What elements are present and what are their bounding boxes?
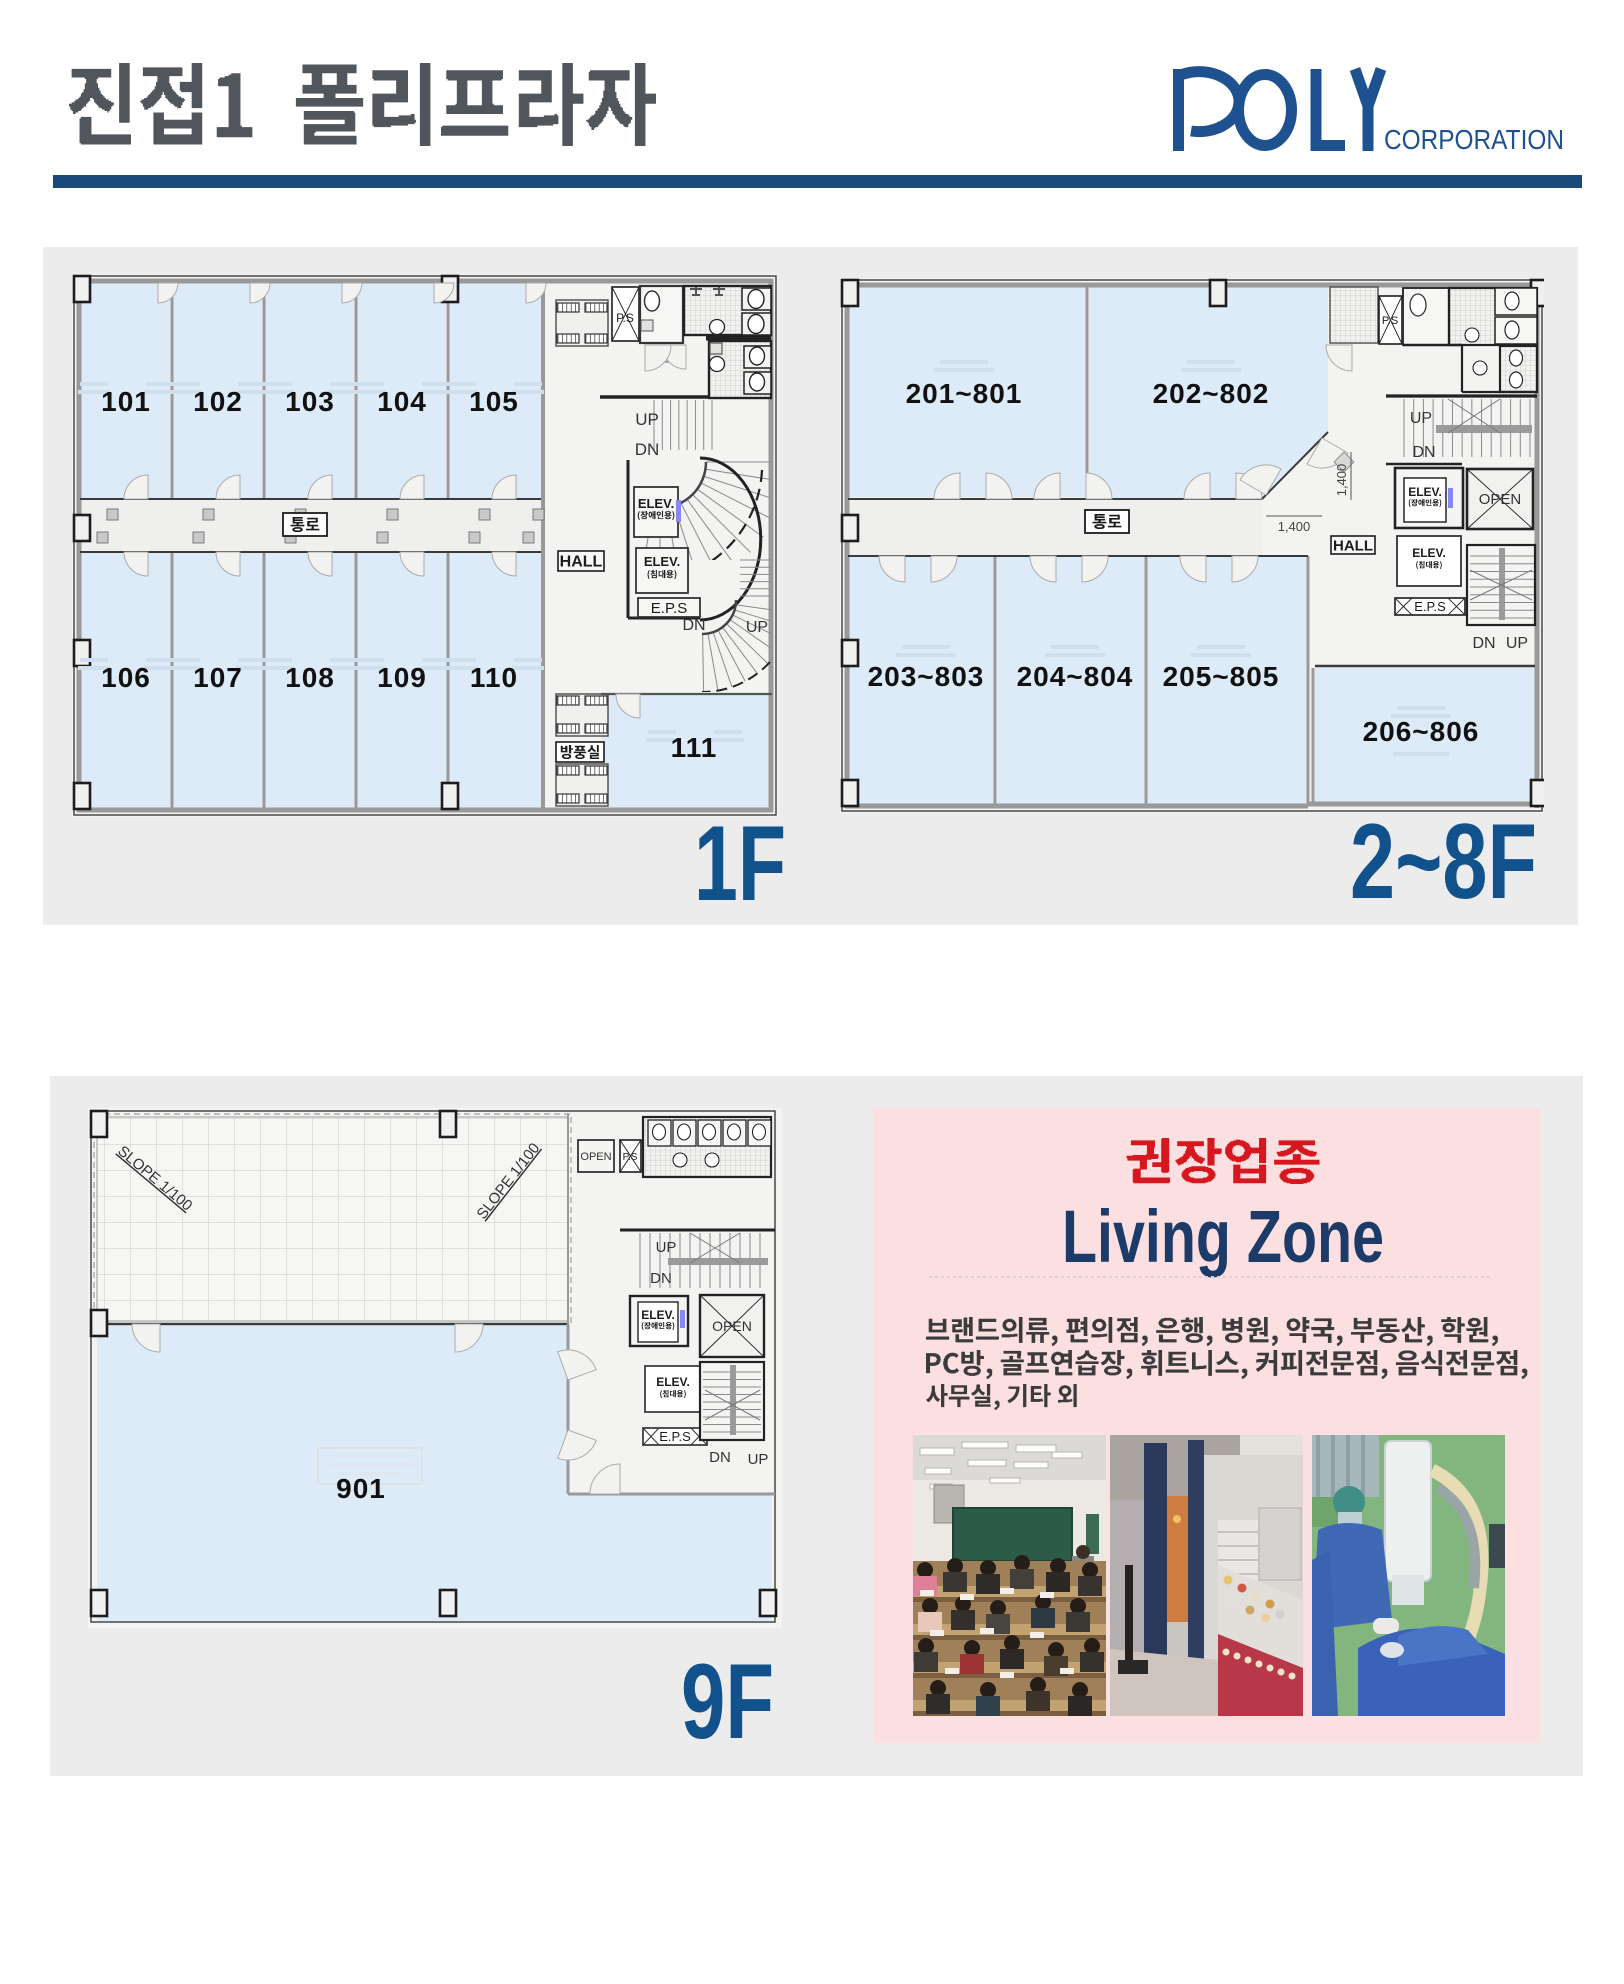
svg-text:ELEV.: ELEV.	[1412, 546, 1446, 560]
svg-text:UP: UP	[748, 1451, 769, 1468]
svg-text:1,400: 1,400	[1278, 519, 1311, 534]
svg-text:ELEV.: ELEV.	[638, 496, 674, 511]
svg-text:201~801: 201~801	[906, 378, 1023, 409]
svg-text:111: 111	[671, 732, 718, 763]
svg-text:1,400: 1,400	[1334, 464, 1349, 497]
svg-text:203~803: 203~803	[868, 661, 985, 692]
svg-text:204~804: 204~804	[1017, 661, 1134, 692]
svg-text:105: 105	[469, 386, 519, 417]
svg-text:Living Zone: Living Zone	[1062, 1195, 1384, 1278]
svg-text:P.S: P.S	[1382, 315, 1398, 327]
svg-text:104: 104	[377, 386, 427, 417]
svg-text:UP: UP	[1506, 635, 1528, 652]
svg-text:DN: DN	[682, 617, 705, 634]
svg-text:DN: DN	[1412, 444, 1435, 461]
svg-text:E.P.S: E.P.S	[1414, 599, 1446, 614]
svg-text:OPEN: OPEN	[1479, 491, 1522, 508]
svg-text:DN: DN	[1472, 635, 1495, 652]
svg-text:202~802: 202~802	[1153, 378, 1270, 409]
svg-text:E.P.S: E.P.S	[651, 600, 687, 617]
svg-text:HALL: HALL	[1333, 538, 1373, 555]
svg-text:UP: UP	[746, 619, 768, 636]
svg-text:101: 101	[101, 386, 151, 417]
svg-text:108: 108	[285, 662, 335, 693]
svg-text:OPEN: OPEN	[580, 1151, 611, 1163]
svg-text:107: 107	[193, 662, 243, 693]
svg-text:205~805: 205~805	[1163, 661, 1280, 692]
svg-text:109: 109	[377, 662, 427, 693]
svg-text:ELEV.: ELEV.	[644, 554, 680, 569]
svg-text:110: 110	[470, 662, 518, 693]
svg-text:UP: UP	[1410, 410, 1432, 427]
svg-text:P.S: P.S	[623, 1152, 638, 1163]
svg-text:ELEV.: ELEV.	[656, 1375, 690, 1389]
svg-text:UP: UP	[635, 410, 659, 429]
svg-text:ELEV.: ELEV.	[641, 1308, 675, 1322]
svg-text:HALL: HALL	[560, 554, 603, 571]
svg-text:901: 901	[336, 1473, 386, 1504]
svg-text:9F: 9F	[681, 1641, 774, 1761]
svg-text:P.S: P.S	[616, 311, 634, 325]
svg-text:UP: UP	[656, 1239, 677, 1256]
svg-text:103: 103	[285, 386, 335, 417]
svg-text:102: 102	[193, 386, 243, 417]
svg-text:ELEV.: ELEV.	[1408, 485, 1442, 499]
svg-text:DN: DN	[650, 1270, 672, 1287]
svg-text:2~8F: 2~8F	[1350, 801, 1537, 921]
svg-text:206~806: 206~806	[1363, 716, 1480, 747]
svg-text:CORPORATION: CORPORATION	[1384, 124, 1564, 155]
svg-text:DN: DN	[635, 440, 660, 459]
svg-text:OPEN: OPEN	[712, 1318, 752, 1334]
svg-text:106: 106	[101, 662, 151, 693]
svg-text:DN: DN	[709, 1449, 731, 1466]
svg-text:E.P.S: E.P.S	[659, 1429, 691, 1444]
svg-text:1F: 1F	[694, 803, 786, 923]
